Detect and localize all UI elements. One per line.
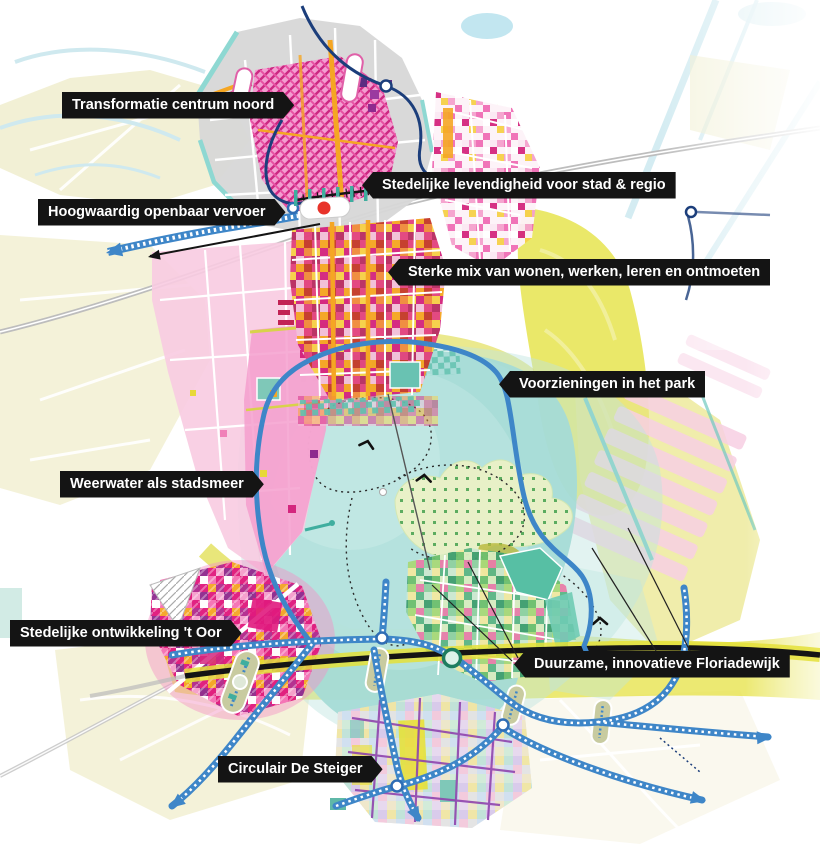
pier-dot <box>329 520 335 526</box>
map-label-sterke-mix: Sterke mix van wonen, werken, leren en o… <box>388 259 770 286</box>
map-label-weerwater-als-stadsmeer: Weerwater als stadsmeer <box>60 471 264 498</box>
map-label-stedelijke-ontwikkeling-t-oor: Stedelijke ontwikkeling 't Oor <box>10 620 242 647</box>
buoy-dot <box>380 489 387 496</box>
map-label-stedelijke-levendigheid: Stedelijke levendigheid voor stad & regi… <box>362 172 676 199</box>
fade-overlay <box>660 0 820 350</box>
map-label-transformatie-centrum-noord: Transformatie centrum noord <box>62 92 294 119</box>
map-label-circulair-de-steiger: Circulair De Steiger <box>218 756 383 783</box>
map-canvas: Transformatie centrum noord Stedelijke l… <box>0 0 820 844</box>
map-label-duurzame-floriadewijk: Duurzame, innovatieve Floriadewijk <box>514 651 790 678</box>
map-label-voorzieningen-in-het-park: Voorzieningen in het park <box>499 371 705 398</box>
map-illustration <box>0 0 820 844</box>
map-label-hoogwaardig-openbaar-vervoer: Hoogwaardig openbaar vervoer <box>38 199 286 226</box>
